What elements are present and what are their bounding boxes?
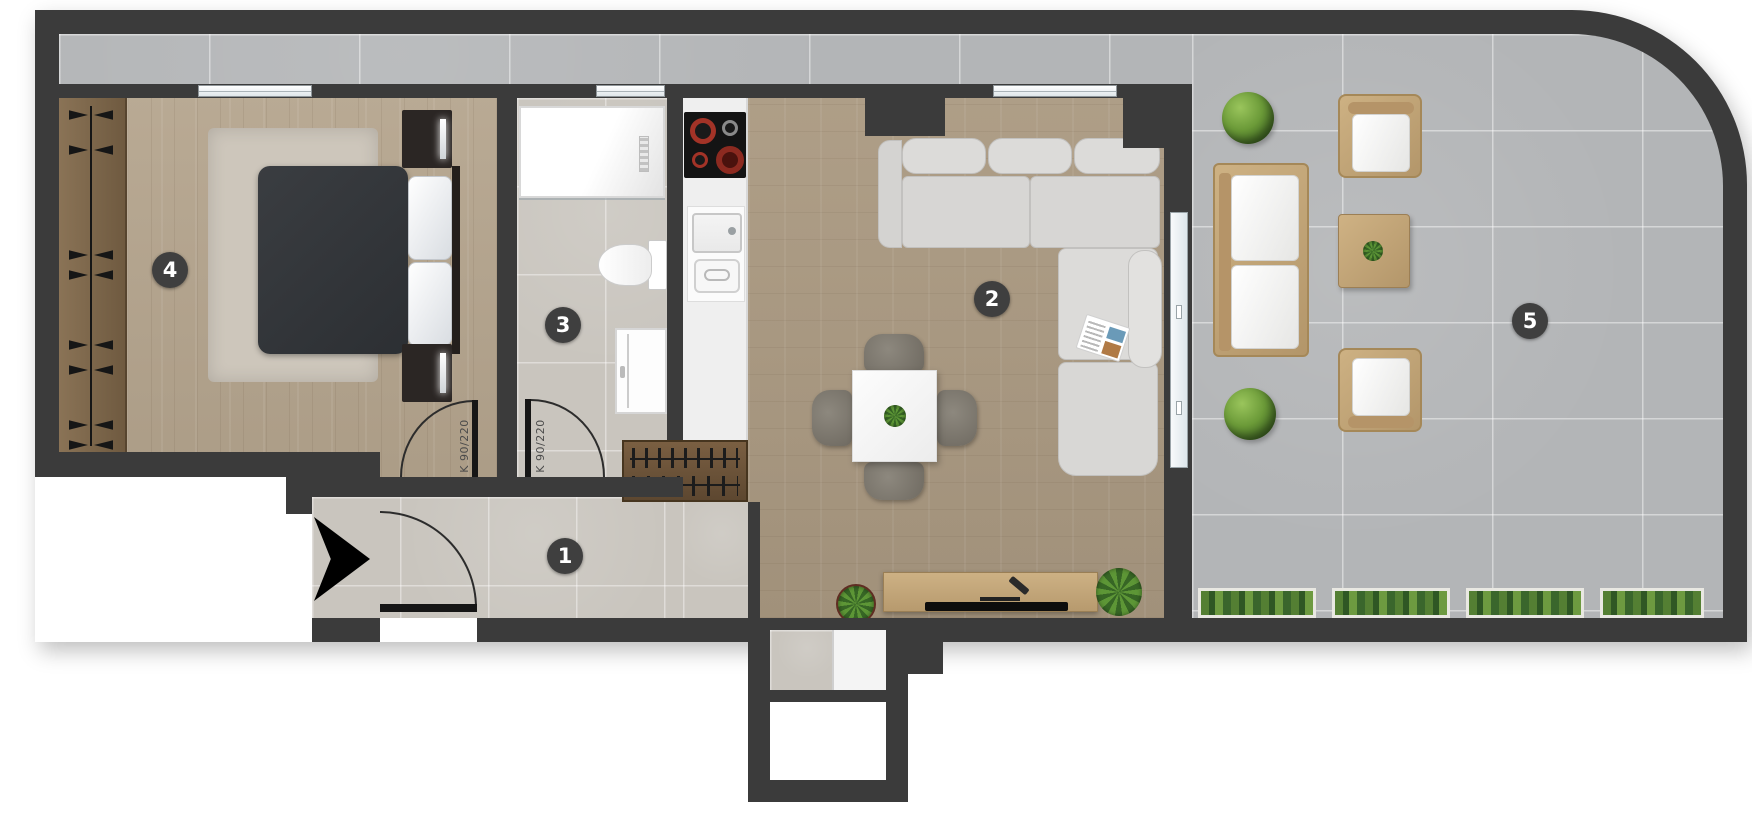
- bed-duvet: [258, 166, 408, 354]
- room-badge-terrace: 5: [1512, 303, 1548, 339]
- cooktop: [684, 112, 746, 178]
- door-size-label: K 90/220: [534, 406, 550, 486]
- wall-bedroom-bottom: [35, 452, 380, 477]
- room-badge-hallway: 1: [547, 538, 583, 574]
- bathroom-window: [596, 85, 665, 97]
- sofa-seat-cushion: [1030, 176, 1160, 248]
- magazine-photo: [1101, 341, 1121, 359]
- terrace-planter: [1332, 588, 1450, 618]
- terrace-planter: [1600, 588, 1704, 618]
- outdoor-armchair: [1338, 94, 1422, 178]
- burner-icon: [716, 146, 744, 174]
- bed-pillow: [408, 176, 452, 260]
- washer-handle: [620, 366, 625, 378]
- armchair-cushion: [1352, 358, 1410, 416]
- wall-hallway-top: [605, 477, 683, 497]
- wall-bathroom-kitchen: [667, 98, 683, 440]
- window-frame-bar: [199, 91, 311, 92]
- magazine-photo: [1106, 327, 1126, 344]
- outdoor-sofa-back: [1219, 173, 1231, 351]
- armchair-back: [1348, 102, 1414, 114]
- living-room-window: [993, 85, 1117, 97]
- sliding-door-handle: [1176, 305, 1182, 319]
- tv-screen: [925, 602, 1068, 611]
- sofa-main: [878, 136, 1162, 250]
- bathroom-door-leaf: [525, 399, 531, 477]
- burner-icon: [722, 120, 738, 136]
- clothes-hanger-icon: [69, 364, 113, 376]
- lamp-icon: [440, 353, 446, 393]
- room-badge-living-room: 2: [974, 281, 1010, 317]
- shower-glass: [519, 198, 665, 200]
- bed-pillow: [408, 262, 452, 346]
- sofa-armrest: [878, 140, 902, 248]
- clothes-hanger-icon: [69, 144, 113, 156]
- tv-stand: [980, 597, 1020, 601]
- shower-tray: [519, 106, 665, 198]
- armchair-back: [1348, 416, 1414, 428]
- burner-icon: [690, 118, 716, 144]
- terrace-planter: [1466, 588, 1584, 618]
- nightstand: [402, 344, 452, 402]
- floor-plan-canvas: K 90/220 K 90/220 1 2 3 4 5: [0, 0, 1752, 826]
- washing-machine: [615, 328, 667, 414]
- drawer-handle: [704, 269, 730, 281]
- outdoor-sofa-cushion: [1231, 175, 1299, 261]
- sofa-back-cushion: [902, 138, 986, 174]
- clothes-hanger-icon: [69, 269, 113, 281]
- shaft-lower-cell: [770, 702, 886, 780]
- window-frame-bar: [597, 91, 664, 92]
- clothes-hanger-icon: [69, 249, 113, 261]
- shaft-upper-cell-panel: [832, 630, 886, 690]
- sofa-seat-cushion: [902, 176, 1030, 248]
- bedroom-window: [198, 85, 312, 97]
- closet-hangers-icon: [632, 448, 738, 468]
- dining-chair: [864, 462, 924, 500]
- armchair-cushion: [1352, 114, 1410, 172]
- clothes-hanger-icon: [69, 439, 113, 451]
- utility-shaft: [748, 618, 908, 802]
- plant-icon: [838, 586, 874, 622]
- washer-door-line: [627, 334, 629, 408]
- outdoor-armchair: [1338, 348, 1422, 432]
- faucet-icon: [728, 227, 736, 235]
- table-plant-icon: [884, 405, 906, 427]
- window-frame-bar: [994, 91, 1116, 92]
- table-plant-icon: [1363, 241, 1383, 261]
- wall-bedroom-bathroom: [497, 98, 517, 477]
- top-ledge-floor: [59, 34, 1192, 84]
- nightstand: [402, 110, 452, 168]
- dining-chair: [864, 334, 924, 372]
- clothes-hanger-icon: [69, 419, 113, 431]
- sofa-corner-back: [1128, 250, 1162, 368]
- coffee-table: [1338, 214, 1410, 288]
- hallway-floor-extension: [683, 497, 748, 618]
- dining-chair: [812, 390, 852, 446]
- bedroom-wardrobe: [59, 98, 127, 452]
- bed-headboard: [452, 166, 460, 354]
- sliding-door-handle: [1176, 401, 1182, 415]
- room-badge-bathroom: 3: [545, 307, 581, 343]
- outside-cutout: [35, 477, 312, 642]
- door-size-label: K 90/220: [458, 406, 474, 486]
- sofa-back-cushion: [988, 138, 1072, 174]
- wall-step-block: [905, 618, 943, 674]
- shower-drain: [639, 136, 649, 172]
- wall-hallway-top: [477, 477, 527, 497]
- lamp-icon: [440, 119, 446, 159]
- kitchen-sink-unit: [687, 206, 745, 302]
- shaft-upper-cell-floor: [770, 630, 832, 690]
- wall-below-closet: [748, 502, 760, 618]
- plant-icon: [1096, 568, 1142, 616]
- room-badge-bedroom: 4: [152, 252, 188, 288]
- chaise-cushion: [1058, 362, 1158, 476]
- dining-chair: [937, 390, 977, 446]
- outdoor-sofa-cushion: [1231, 265, 1299, 349]
- terrace-bush-icon: [1222, 92, 1274, 144]
- entry-door-leaf: [380, 604, 477, 612]
- wall-living-pier: [865, 98, 945, 136]
- clothes-hanger-icon: [69, 109, 113, 121]
- wall-hallway-top: [312, 477, 400, 497]
- burner-icon: [692, 152, 708, 168]
- terrace-sliding-door: [1170, 212, 1188, 468]
- terrace-bush-icon: [1224, 388, 1276, 440]
- outdoor-sofa: [1213, 163, 1309, 357]
- terrace-planter: [1198, 588, 1316, 618]
- toilet-bowl: [598, 244, 652, 286]
- clothes-hanger-icon: [69, 339, 113, 351]
- entry-door-opening: [380, 618, 477, 642]
